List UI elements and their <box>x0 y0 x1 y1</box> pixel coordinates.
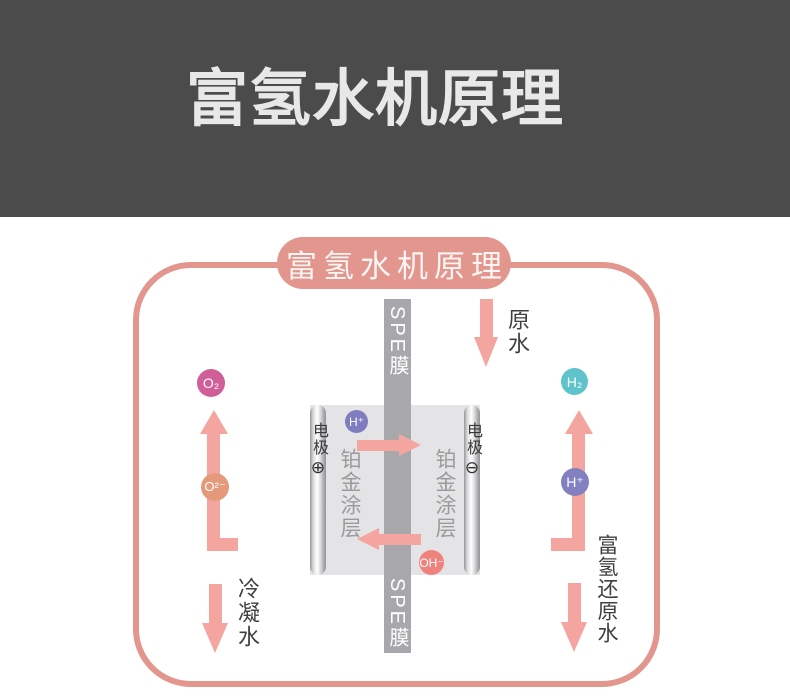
diagram-badge: 富氢水机原理 <box>277 237 511 289</box>
page-title: 富氢水机原理 <box>186 66 564 134</box>
raw-water-down-arrow-icon <box>474 299 499 367</box>
electrode-left-name: 电极 <box>306 422 330 456</box>
diagram-badge-label: 富氢水机原理 <box>280 241 508 286</box>
spe-membrane-label-bottom: SPE膜 <box>383 578 412 650</box>
hplus-ion-badge-cell: H⁺ <box>345 410 368 433</box>
electrode-right-name: 电极 <box>460 422 484 456</box>
page: 富氢水机原理 电极 ⊕ 电极 ⊖ 铂金涂层 铂金涂层 SPE膜 SPE膜 <box>0 0 790 698</box>
o2minus-ion-badge: O²⁻ <box>201 473 229 501</box>
hplus-ion-badge-right: H⁺ <box>561 468 589 496</box>
condensed-water-down-arrow-icon <box>202 584 229 653</box>
hplus-right-arrow-icon <box>357 434 421 457</box>
electrode-right-label: 电极 ⊖ <box>463 422 481 476</box>
raw-water-label: 原水 <box>506 308 528 356</box>
plus-polarity-icon: ⊕ <box>311 459 325 476</box>
ohminus-left-arrow-icon <box>357 528 421 551</box>
o2-molecule-badge: O₂ <box>197 369 225 397</box>
condensed-water-label: 冷凝水 <box>236 577 258 649</box>
electrode-left-label: 电极 ⊕ <box>309 422 327 476</box>
minus-polarity-icon: ⊖ <box>465 459 479 476</box>
ohminus-ion-badge: OH⁻ <box>419 550 444 575</box>
platinum-coating-left-label: 铂金涂层 <box>334 448 364 540</box>
platinum-coating-right-label: 铂金涂层 <box>429 448 459 540</box>
hydrogen-water-down-arrow-icon <box>561 583 588 652</box>
header-banner: 富氢水机原理 <box>0 0 790 217</box>
spe-membrane-label-top: SPE膜 <box>383 306 412 378</box>
spe-membrane-bar: SPE膜 SPE膜 <box>384 299 411 653</box>
hydrogen-rich-water-label: 富氢还原水 <box>596 534 617 644</box>
h2-molecule-badge: H₂ <box>561 368 588 395</box>
